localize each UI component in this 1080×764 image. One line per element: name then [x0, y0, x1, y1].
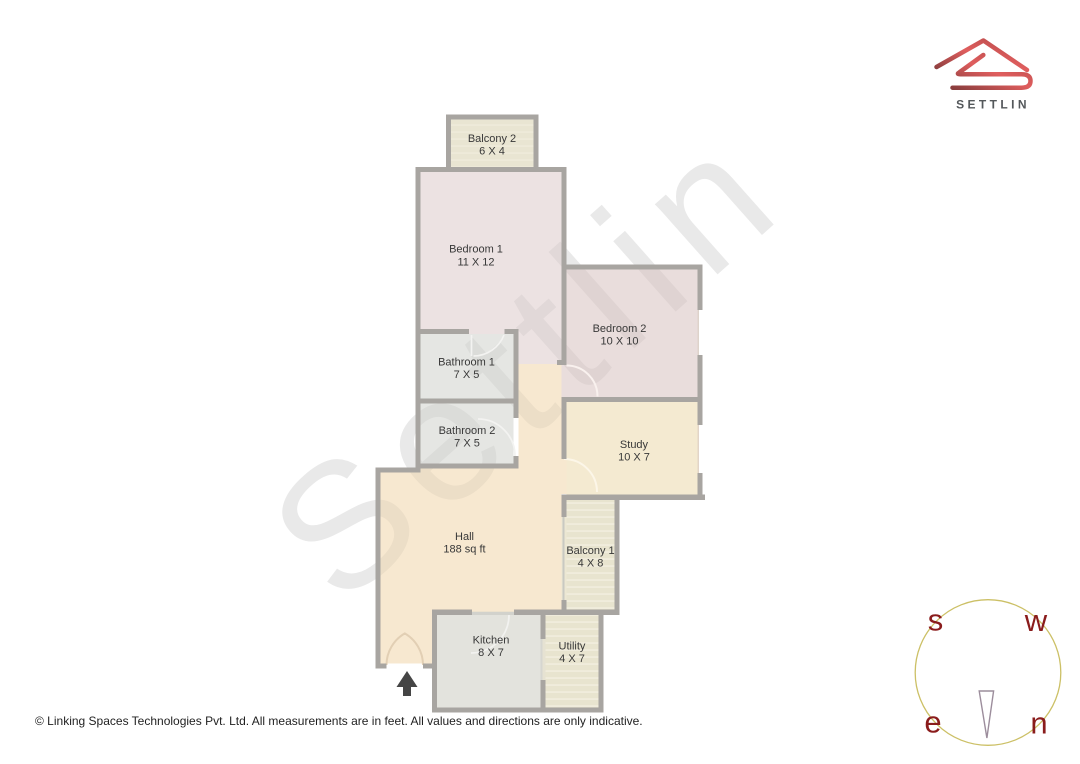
svg-text:SETTLIN: SETTLIN — [956, 98, 1030, 112]
svg-text:188 sq ft: 188 sq ft — [443, 544, 485, 556]
svg-text:10 X 10: 10 X 10 — [601, 336, 639, 348]
svg-text:e: e — [924, 705, 941, 740]
svg-text:11 X 12: 11 X 12 — [457, 257, 494, 269]
svg-text:Kitchen: Kitchen — [473, 635, 510, 647]
svg-text:s: s — [928, 603, 944, 638]
svg-text:© Linking Spaces Technologies: © Linking Spaces Technologies Pvt. Ltd. … — [35, 714, 643, 728]
svg-text:n: n — [1030, 706, 1047, 741]
svg-text:w: w — [1024, 603, 1048, 638]
svg-text:4 X 8: 4 X 8 — [578, 558, 604, 570]
svg-text:6 X 4: 6 X 4 — [479, 146, 505, 158]
svg-text:10 X 7: 10 X 7 — [618, 452, 650, 464]
svg-text:Study: Study — [620, 439, 649, 451]
svg-text:8 X 7: 8 X 7 — [478, 647, 504, 659]
svg-text:Balcony 2: Balcony 2 — [468, 133, 516, 145]
svg-text:Bedroom 2: Bedroom 2 — [593, 323, 647, 335]
svg-text:Bathroom 2: Bathroom 2 — [439, 425, 496, 437]
svg-text:Utility: Utility — [559, 641, 586, 653]
svg-text:Hall: Hall — [455, 531, 474, 543]
svg-text:Bathroom 1: Bathroom 1 — [438, 357, 495, 369]
svg-text:Bedroom 1: Bedroom 1 — [449, 244, 503, 256]
svg-text:7 X 5: 7 X 5 — [454, 369, 480, 381]
svg-text:7 X 5: 7 X 5 — [454, 438, 480, 450]
svg-text:Balcony 1: Balcony 1 — [566, 545, 614, 557]
svg-text:4 X 7: 4 X 7 — [559, 653, 585, 665]
